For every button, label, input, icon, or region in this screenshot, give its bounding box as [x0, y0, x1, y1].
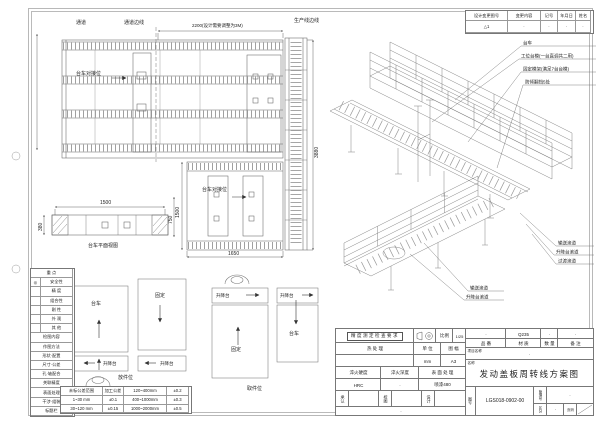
revision-table: 设计变更图号 变更内容 记号 年月日 姓名 △1 · · · ·: [465, 10, 594, 34]
rev-cell: ·: [541, 21, 558, 33]
legend-check-item: 尺寸·公差: [31, 361, 73, 370]
label-channel-edge: 通道边线: [124, 19, 144, 26]
legend-mark: [31, 306, 41, 315]
legend-label: 安全性: [41, 278, 73, 287]
dim-trolley-380: 380: [38, 222, 44, 231]
callout-station-pallet: 工位台模(一台直调共二用): [521, 53, 574, 60]
tol-cell: 加工公差: [103, 387, 124, 396]
schematic-fixed-label: 固定: [231, 346, 241, 353]
label-prod-edge: 生产线边线: [294, 17, 319, 24]
rev-header: 记号: [541, 11, 558, 21]
legend-mark: [31, 287, 41, 296]
schematic-trolley-label: 台车: [289, 330, 299, 337]
tol-cell: ±0.3: [167, 396, 189, 405]
legend-label: 刚 性: [41, 306, 73, 315]
tol-cell: 1~30 mm: [61, 396, 103, 405]
project-name-value: ·: [529, 352, 531, 357]
rev-cell: ·: [558, 21, 576, 33]
legend-mark: [31, 297, 41, 306]
tol-cell: 未标公差范围: [61, 387, 103, 396]
schematic-fixed-label: 固定: [155, 292, 165, 299]
drawing-title: 发动盖板周转线方案图: [479, 368, 579, 380]
drawing-sheet: 通道 通道边线 2200(设计需要调整为3M) 生产线边线 台车对接位 3880…: [0, 0, 600, 424]
rev-header: 变更内容: [508, 11, 541, 21]
schematic-lift-label: 升降台: [280, 292, 294, 299]
callout-conveyor-right: 输送滚道: [558, 240, 576, 247]
legend-label: 组合性: [41, 297, 73, 306]
trolley-view: [52, 215, 168, 235]
dim-3880: 3880: [314, 147, 320, 158]
callout-lift-right: 升降台滚道: [556, 249, 579, 256]
rev-header: 设计变更图号: [466, 11, 508, 21]
tol-cell: ±0.1: [103, 396, 124, 405]
callout-trolley: 台车: [523, 40, 532, 47]
tol-cell: 1000~2000mm: [124, 405, 167, 414]
legend-check-item: 孔·轴配合: [31, 370, 73, 379]
dim-trolley-750: 750: [168, 215, 174, 224]
accuracy-check-label: 精度测定检查要求: [347, 332, 403, 341]
project-name-label: 项目名称: [468, 349, 482, 354]
schematic-lift-label: 升降台: [216, 292, 230, 299]
legend-check-title: 检图内容: [31, 333, 73, 342]
legend-check-item: 作图方法: [31, 343, 73, 352]
rev-cell: ·: [576, 21, 591, 33]
legend-label: 精 度: [41, 287, 73, 296]
label-channel: 通道: [76, 19, 86, 26]
schematic-lift-label: 升降台: [160, 360, 174, 367]
rev-header: 年月日: [558, 11, 576, 21]
label-dock-top: 台车对接位: [76, 70, 101, 77]
dwg-no-value: LGS018-0902-00: [475, 386, 535, 416]
name-label: 名称: [468, 361, 475, 366]
title-block: 精度测定检查要求 比例 1/25 热 处 理 单 位 图 幅 mm A3 淬火硬…: [335, 328, 592, 414]
legend-mark: [31, 315, 41, 324]
plan-view-lower: [187, 162, 283, 250]
callout-transition-right: 过渡滚道: [558, 258, 576, 265]
tol-cell: ±0.2: [167, 387, 189, 396]
legend-mark: [31, 324, 41, 333]
dim-1500-lower: 1500: [175, 207, 181, 218]
dim-trolley-1500: 1500: [100, 200, 111, 206]
callout-anti-tip: 防倾翻挡5处: [525, 79, 551, 86]
legend-mark: ◎: [31, 278, 41, 287]
schematic-lift-label: 升降台: [103, 360, 117, 367]
caption-unload-position: 取件位: [247, 385, 262, 392]
tol-cell: ±0.15: [103, 405, 124, 414]
tol-cell: 120~400mm: [124, 387, 167, 396]
tol-cell: 400~1000mm: [124, 396, 167, 405]
callout-conveyor-bottom: 输送滚道: [470, 285, 488, 292]
caption-load-position: 放件位: [118, 374, 133, 381]
dim-1650: 1650: [228, 251, 239, 257]
rev-header: 姓名: [576, 11, 591, 21]
dim-2200: 2200(设计需要调整为3M): [192, 22, 243, 29]
flow-schematics: [70, 275, 318, 386]
page-diagonal-cell: [576, 403, 594, 416]
callout-fixed-frame: 固定模架(满足7台台模): [523, 66, 570, 73]
tolerance-table: 未标公差范围 加工公差 120~400mm ±0.2 1~30 mm ±0.1 …: [60, 386, 192, 414]
tol-cell: ±0.5: [167, 405, 189, 414]
legend-check-item: 形状·配置: [31, 352, 73, 361]
projection-symbol-icon: [415, 330, 435, 342]
caption-trolley-view: 台车平面视图: [88, 242, 118, 249]
legend-label: 外 观: [41, 315, 73, 324]
label-dock-lower: 台车对接位: [202, 186, 227, 193]
rev-cell: △1: [466, 21, 508, 33]
schematic-trolley-label: 台车: [91, 300, 101, 307]
legend-title: 重 点: [31, 269, 73, 278]
drawing-name-cell: 名称 发动盖板周转线方案图: [465, 359, 594, 388]
tol-cell: 30~120 mm: [61, 405, 103, 414]
bottom-note: ·: [335, 406, 467, 416]
rev-cell: ·: [508, 21, 541, 33]
callout-lift-bottom: 升降台滚道: [466, 294, 489, 301]
plan-view-top: [62, 27, 307, 250]
diagonal-mark: [577, 404, 593, 415]
legend-label: 其 他: [41, 324, 73, 333]
